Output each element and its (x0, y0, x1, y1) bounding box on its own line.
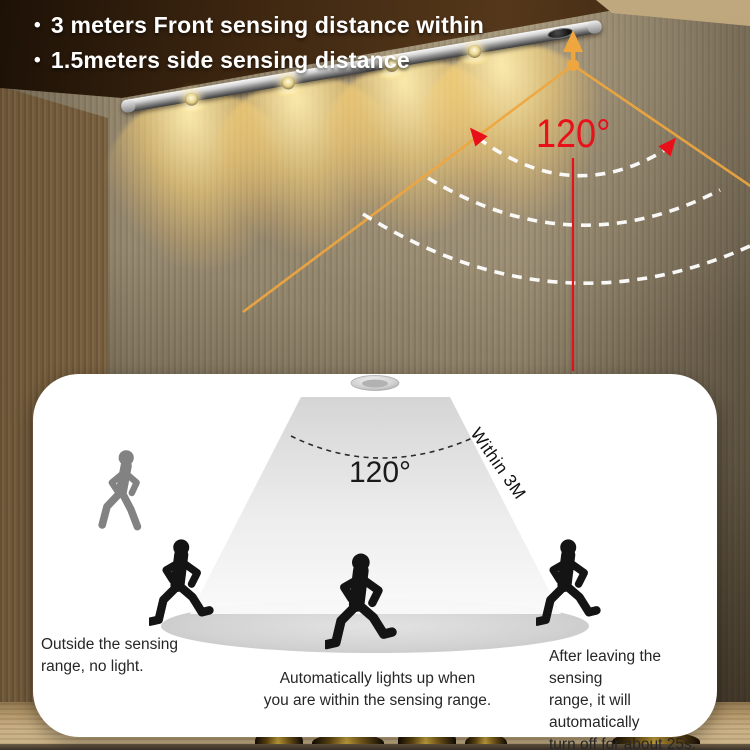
feature-bullet-2: • 1.5meters side sensing distance (34, 47, 484, 74)
panel-angle-label: 120° (325, 456, 435, 490)
feature-bullet-1: • 3 meters Front sensing distance within (34, 12, 484, 39)
feature-text-2: 1.5meters side sensing distance (51, 47, 410, 74)
sensing-arcs (363, 138, 750, 283)
apex-dot (567, 59, 579, 71)
product-infographic: 120° • 3 meters Front sensing distance w… (0, 0, 750, 750)
running-person-icon (149, 538, 221, 632)
sensing-diagram-panel: 120° Within 3M (33, 374, 717, 737)
ceiling-sensor-lens (362, 380, 388, 388)
wall-angle-label: 120° (536, 112, 610, 157)
caption-leaving-range: After leaving the sensing range, it will… (549, 646, 717, 750)
bullet-icon: • (34, 15, 41, 37)
running-person-icon (536, 538, 608, 632)
running-person-icon (325, 552, 405, 656)
caption-inside-range: Automatically lights up when you are wit… (205, 668, 550, 712)
walking-person-icon (91, 444, 155, 542)
feature-text-1: 3 meters Front sensing distance within (51, 12, 484, 39)
bullet-icon: • (34, 50, 41, 72)
cone-edge-left (243, 65, 573, 312)
up-arrow-icon (563, 30, 583, 52)
caption-outside-range: Outside the sensing range, no light. (41, 634, 231, 678)
feature-bullets: • 3 meters Front sensing distance within… (34, 12, 484, 82)
